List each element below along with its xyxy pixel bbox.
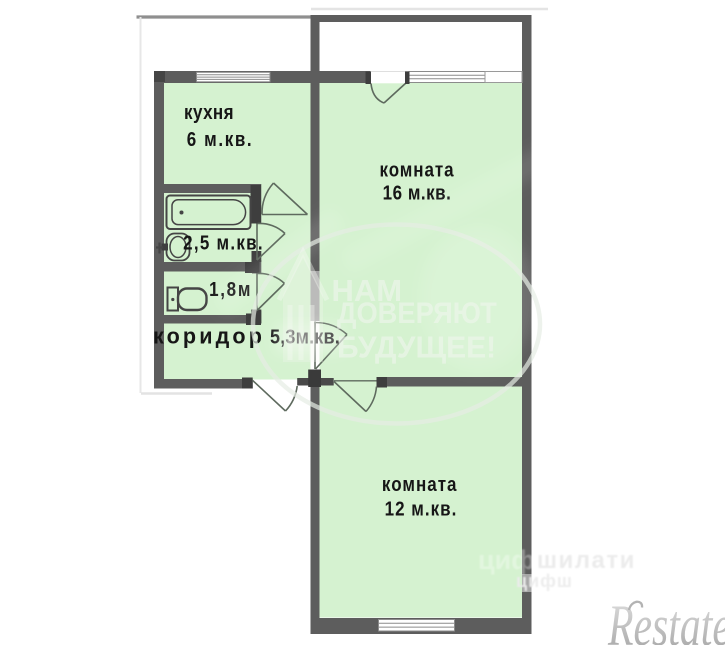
svg-text:комната: комната — [379, 158, 454, 181]
svg-text:кухня: кухня — [184, 101, 234, 124]
svg-text:комната: комната — [382, 472, 458, 495]
svg-text:Restate: Restate — [607, 593, 725, 645]
svg-text:БУДУЩЕЕ!: БУДУЩЕЕ! — [337, 330, 496, 365]
svg-text:12 м.кв.: 12 м.кв. — [385, 497, 458, 520]
svg-text:2,5 м.кв.: 2,5 м.кв. — [183, 231, 264, 254]
svg-text:шилати: шилати — [537, 547, 636, 574]
svg-text:цифш: цифш — [516, 571, 573, 591]
svg-text:ДОВЕРЯЮТ: ДОВЕРЯЮТ — [337, 297, 497, 330]
svg-text:коридор: коридор — [153, 323, 265, 348]
svg-text:6 м.кв.: 6 м.кв. — [187, 128, 253, 151]
